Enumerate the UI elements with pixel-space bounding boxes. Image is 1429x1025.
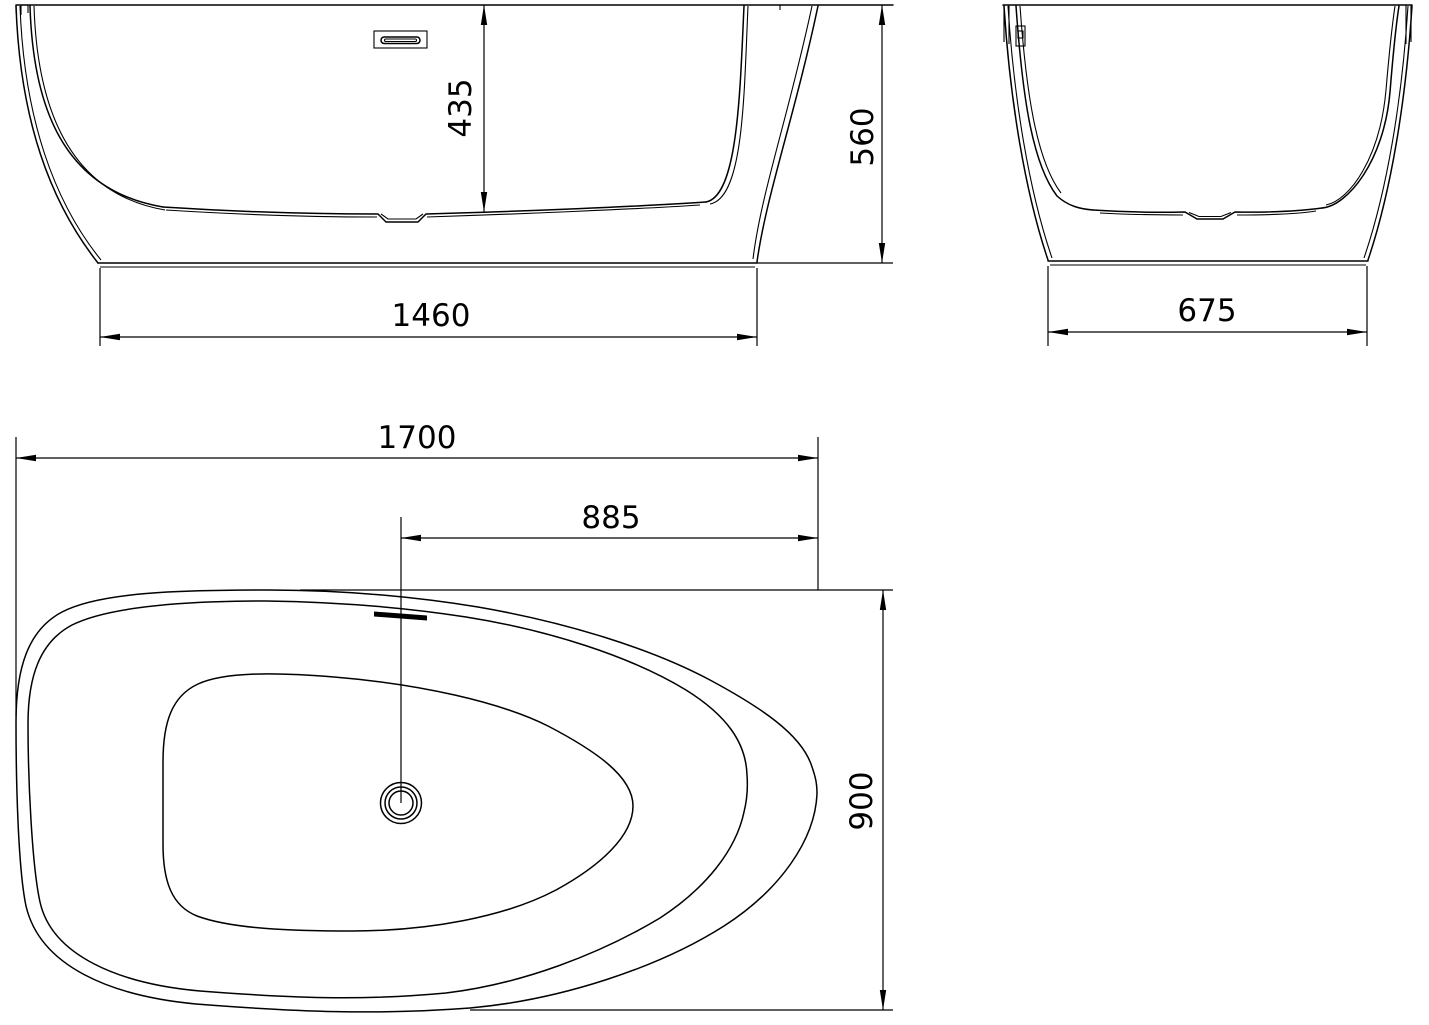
dim-560: 560 — [845, 5, 885, 263]
dim-560-label: 560 — [845, 107, 881, 166]
side-interior-floor — [163, 202, 706, 222]
end-right-inner-wall-inner-line — [1326, 6, 1395, 205]
drawing-sheet: 435 560 1460 — [0, 0, 1429, 1025]
side-left-outer-wall — [16, 6, 98, 263]
plan-view: 1700 885 900 — [16, 420, 893, 1012]
dim-1460-arrow-left — [100, 334, 120, 340]
side-elevation-view: 435 560 1460 — [16, 5, 893, 346]
dim-560-arrow-up — [879, 5, 885, 25]
side-right-inner-wall — [706, 6, 744, 202]
dim-560-arrow-down — [879, 243, 885, 263]
dim-1700: 1700 — [16, 420, 818, 716]
dim-435: 435 — [443, 5, 487, 212]
dim-900-arrow-up — [880, 590, 886, 610]
dim-435-label: 435 — [443, 78, 479, 137]
side-right-outer-wall — [757, 6, 818, 262]
dim-1460-arrow-right — [737, 334, 757, 340]
end-left-outer-wall-inner-line — [1008, 6, 1052, 258]
end-right-outer-wall-inner-line — [1364, 6, 1408, 258]
plan-inner-rim-contour — [28, 601, 747, 998]
side-left-rim-cap — [16, 5, 28, 15]
dim-435-arrow-up — [481, 5, 487, 25]
dim-1460: 1460 — [100, 268, 757, 346]
end-right-inner-wall — [1322, 6, 1399, 208]
dim-675: 675 — [1048, 266, 1367, 346]
dim-675-arrow-right — [1347, 329, 1367, 335]
dim-885: 885 — [401, 500, 818, 541]
dim-1460-label: 1460 — [392, 298, 471, 334]
dim-675-arrow-left — [1048, 329, 1068, 335]
dim-1700-arrow-right — [798, 455, 818, 461]
side-right-outer-wall-inner-line — [753, 6, 812, 259]
bathtub-technical-drawing: 435 560 1460 — [0, 0, 1429, 1025]
dim-900-label: 900 — [844, 771, 880, 830]
dim-435-arrow-down — [481, 192, 487, 212]
dim-885-arrow-left — [401, 535, 421, 541]
dim-1700-label: 1700 — [378, 420, 457, 456]
dim-900-arrow-down — [880, 990, 886, 1010]
dim-885-arrow-right — [798, 535, 818, 541]
plan-basin-contour — [163, 674, 633, 931]
dim-675-label: 675 — [1177, 293, 1236, 329]
end-left-inner-wall — [1016, 6, 1093, 210]
dim-1700-arrow-left — [16, 455, 36, 461]
dim-885-label: 885 — [581, 500, 640, 536]
end-section-view: 675 — [1003, 5, 1412, 346]
overflow-slot-icon — [374, 31, 427, 48]
